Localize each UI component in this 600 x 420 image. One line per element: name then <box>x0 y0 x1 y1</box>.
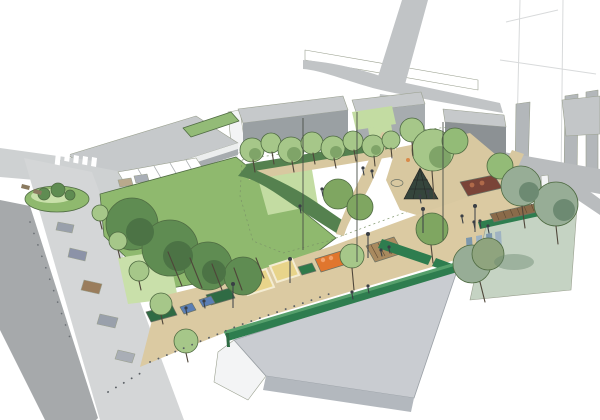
play-item <box>329 256 333 260</box>
play-item <box>480 181 485 186</box>
play-item <box>321 258 325 262</box>
figure <box>418 194 421 197</box>
row-tree-shade <box>330 146 342 158</box>
row-tree-shade <box>249 148 261 160</box>
lamp-head <box>288 257 292 261</box>
row-tree <box>343 131 363 151</box>
figure <box>460 214 463 217</box>
tree-shadow-on-lawn <box>494 254 534 270</box>
park-masterplan-illustration <box>0 0 600 420</box>
figure <box>361 166 364 169</box>
figure <box>298 204 301 207</box>
figure <box>486 224 489 227</box>
figure <box>202 299 205 302</box>
figure <box>387 245 390 248</box>
figure <box>370 169 373 172</box>
lamp-head <box>421 207 425 211</box>
sage-tree-shade <box>519 182 539 202</box>
row-tree <box>382 131 400 149</box>
tree <box>442 128 468 154</box>
figure <box>472 220 475 223</box>
figure <box>366 284 369 287</box>
park-tree <box>347 194 373 220</box>
lamp-head <box>231 282 235 286</box>
row-tree-shade <box>371 145 381 155</box>
plaza-tree <box>340 244 364 268</box>
figure <box>350 290 353 293</box>
street-tree <box>92 205 108 221</box>
street-tree <box>174 329 198 353</box>
figure <box>426 189 429 192</box>
berm-tree-shade <box>163 241 193 271</box>
berm-tree-shade <box>126 218 154 246</box>
lamp-head <box>366 232 370 236</box>
figure <box>184 306 187 309</box>
figure <box>320 187 323 190</box>
sage-tree-shade <box>553 199 575 221</box>
figure <box>478 219 481 222</box>
lamp-head <box>473 204 477 208</box>
row-tree-shade <box>287 147 301 161</box>
street-tree <box>150 293 172 315</box>
street-tree <box>129 261 149 281</box>
illustration-canvas <box>0 0 600 420</box>
mound-tree <box>65 190 75 200</box>
roundabout-spinner <box>391 180 403 187</box>
berm-tree <box>224 257 262 295</box>
street-tree <box>109 232 127 250</box>
figure <box>379 248 382 251</box>
mound-tree <box>51 183 65 197</box>
tower-slab <box>562 96 600 136</box>
swing-item <box>406 158 410 162</box>
row-tree <box>301 132 323 154</box>
berm-tree-shade <box>202 260 226 284</box>
play-item <box>470 183 475 188</box>
